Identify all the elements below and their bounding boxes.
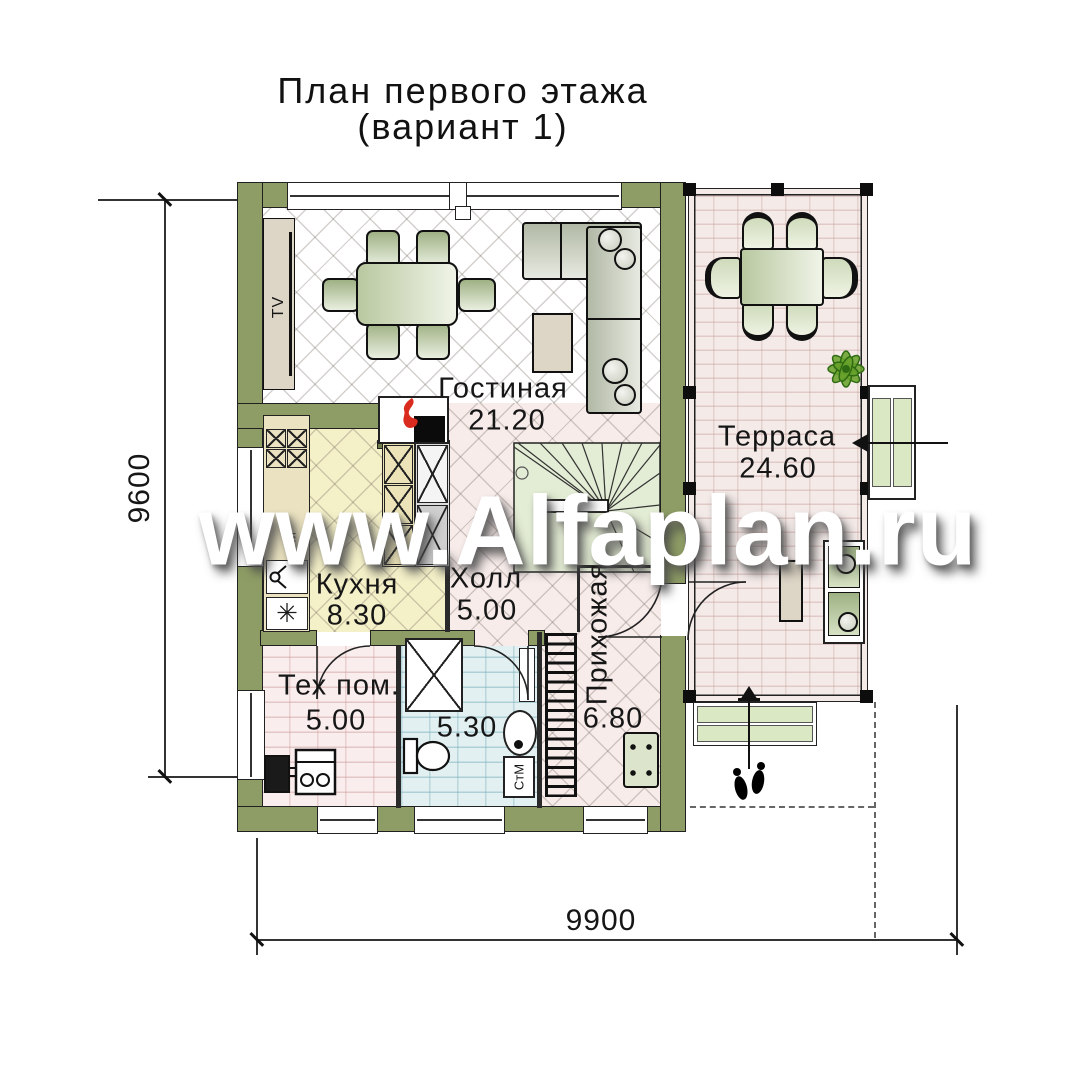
side-entrance-line [866, 442, 948, 444]
page-title-line2: (вариант 1) [357, 106, 568, 148]
dim-label-bottom: 9900 [566, 904, 637, 938]
tv-label: TV [270, 296, 288, 318]
floor-plan-canvas: План первого этажа (вариант 1) TV [0, 0, 1080, 1080]
dim-label-left: 9600 [123, 453, 157, 524]
kitchen-area: 8.30 [327, 600, 387, 633]
washing-machine-label: СтМ [512, 764, 527, 790]
entry-hall-area: 6.80 [583, 703, 643, 736]
terrace-label: Терраса [718, 421, 836, 454]
living-room-label: Гостиная [438, 373, 568, 406]
flame-icon [398, 397, 426, 431]
living-room-area: 21.20 [468, 405, 546, 438]
pillow-icon [838, 612, 858, 632]
tech-room-area: 5.00 [306, 705, 366, 738]
plant-icon [814, 340, 878, 398]
footprints-icon [730, 762, 770, 806]
tech-room-label: Тех пом. [278, 670, 400, 703]
watermark: www.Alfaplan.ru [198, 475, 977, 588]
bathroom-area: 5.30 [437, 712, 497, 745]
hall-area: 5.00 [457, 595, 517, 628]
main-entrance-line [748, 701, 750, 769]
